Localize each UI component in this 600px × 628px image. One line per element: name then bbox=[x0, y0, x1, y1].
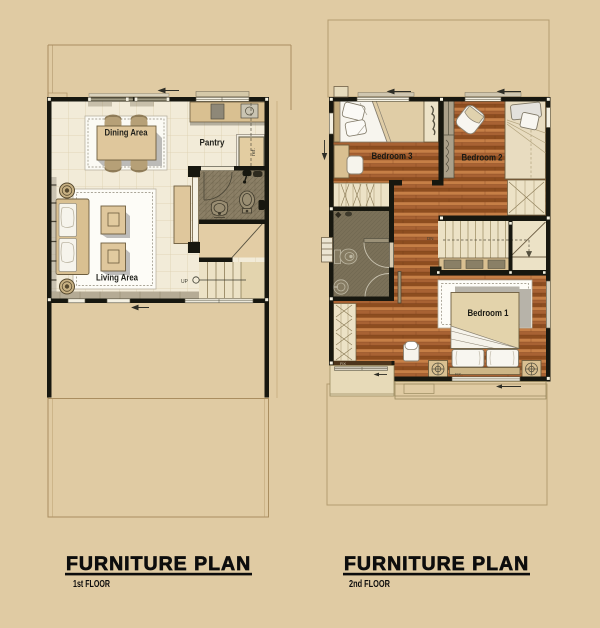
svg-text:ref.: ref. bbox=[251, 148, 257, 156]
svg-text:UP: UP bbox=[181, 279, 189, 285]
svg-text:2nd FLOOR: 2nd FLOOR bbox=[349, 579, 390, 590]
svg-text:FURNITURE PLAN: FURNITURE PLAN bbox=[66, 553, 251, 575]
svg-text:FURNITURE PLAN: FURNITURE PLAN bbox=[344, 553, 529, 575]
svg-text:Bedroom 1: Bedroom 1 bbox=[468, 308, 510, 319]
svg-text:DN: DN bbox=[427, 236, 434, 241]
svg-text:Dining Area: Dining Area bbox=[105, 128, 149, 138]
svg-text:Living Area: Living Area bbox=[96, 273, 139, 283]
svg-text:FIX: FIX bbox=[455, 373, 461, 377]
svg-text:Bedroom 3: Bedroom 3 bbox=[372, 151, 413, 161]
svg-text:Pantry: Pantry bbox=[200, 138, 225, 148]
svg-text:Bedroom 2: Bedroom 2 bbox=[462, 153, 503, 163]
svg-text:1st FLOOR: 1st FLOOR bbox=[73, 579, 110, 590]
